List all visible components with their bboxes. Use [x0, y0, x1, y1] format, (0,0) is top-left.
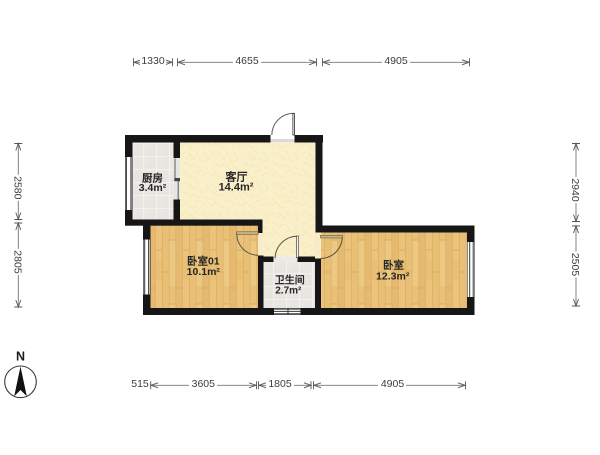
svg-text:12.3m²: 12.3m²: [376, 270, 410, 282]
svg-text:3605: 3605: [192, 378, 216, 390]
svg-text:14.4m²: 14.4m²: [219, 182, 254, 194]
svg-text:515: 515: [131, 378, 149, 390]
svg-text:3.4m²: 3.4m²: [139, 182, 167, 194]
svg-text:4905: 4905: [384, 55, 408, 67]
svg-text:卫生间: 卫生间: [275, 274, 305, 287]
svg-text:2805: 2805: [12, 250, 24, 274]
svg-text:2580: 2580: [11, 176, 23, 200]
svg-text:1805: 1805: [268, 378, 292, 390]
svg-text:2505: 2505: [569, 253, 581, 277]
svg-text:N: N: [16, 350, 25, 364]
svg-text:10.1m²: 10.1m²: [187, 266, 221, 278]
svg-text:4655: 4655: [235, 55, 259, 67]
svg-text:1330: 1330: [141, 55, 165, 67]
svg-text:4905: 4905: [381, 378, 405, 390]
svg-text:2940: 2940: [569, 178, 581, 202]
svg-text:2.7m²: 2.7m²: [275, 286, 302, 297]
